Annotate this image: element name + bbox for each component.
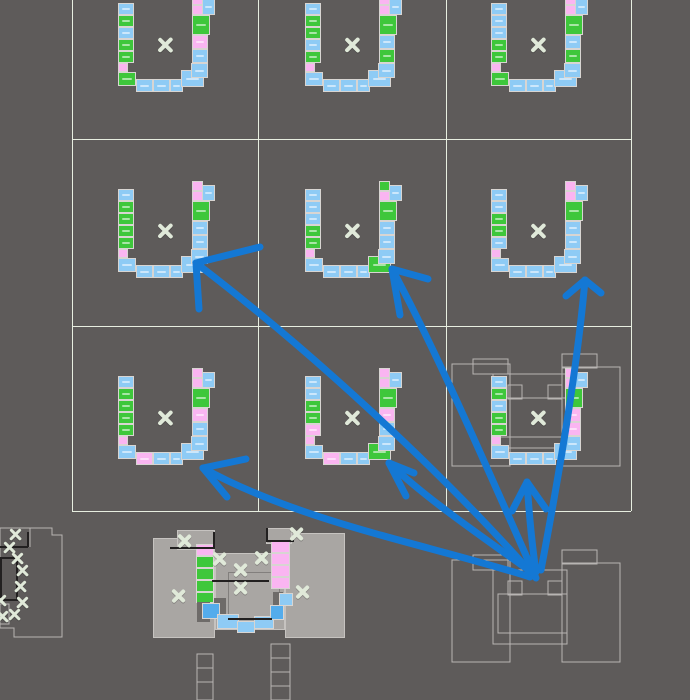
annotation-arrow-shaft-1	[392, 269, 536, 578]
annotation-arrow-barb-0-0	[196, 247, 260, 263]
annotation-arrow-barb-0-1	[196, 263, 199, 309]
editor-canvas[interactable]	[0, 0, 690, 700]
annotation-arrow-layer	[0, 0, 690, 700]
arrows-svg	[0, 0, 690, 700]
annotation-arrow-shaft-2	[541, 280, 585, 570]
annotation-arrow-barb-3-0	[203, 459, 246, 468]
